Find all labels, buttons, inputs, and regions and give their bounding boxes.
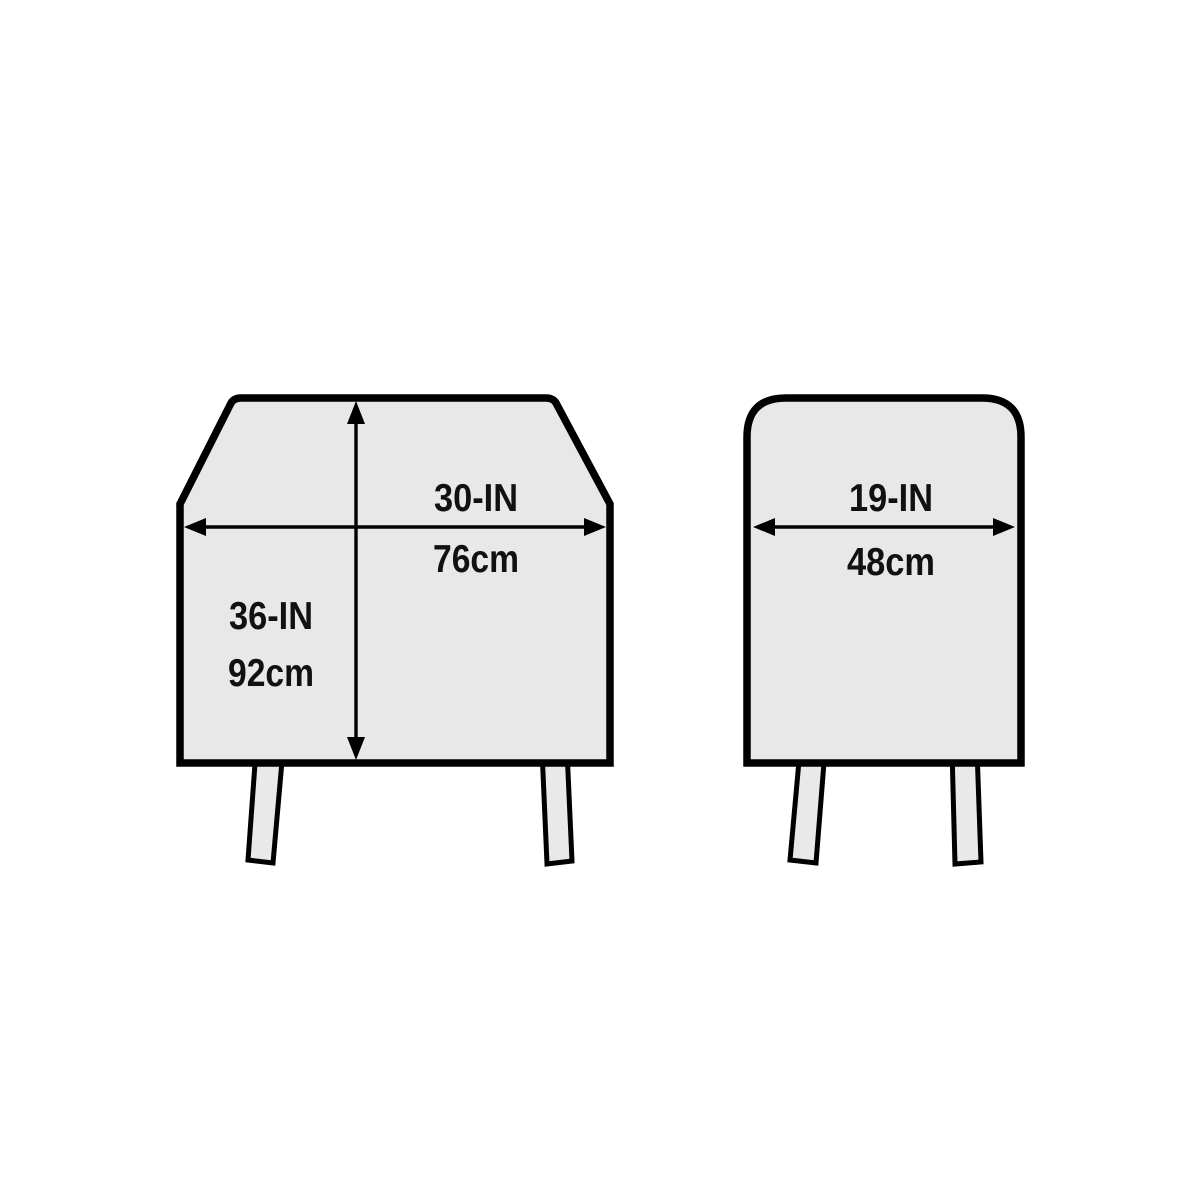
front-width-cm-label: 76cm xyxy=(433,538,519,581)
front-width-inches-label: 30-IN xyxy=(434,477,518,520)
front-view-group: 30-IN 76cm 36-IN 92cm xyxy=(180,398,610,864)
side-view-group: 19-IN 48cm xyxy=(747,398,1021,864)
side-depth-cm-label: 48cm xyxy=(847,541,935,584)
front-view-cover-shape xyxy=(180,398,610,763)
front-height-cm-label: 92cm xyxy=(228,652,314,695)
front-view-left-leg xyxy=(248,750,283,863)
product-dimensions-diagram: 30-IN 76cm 36-IN 92cm 19-IN 48cm xyxy=(0,0,1200,1200)
side-view-left-leg xyxy=(790,750,825,863)
front-height-inches-label: 36-IN xyxy=(229,595,313,638)
dimensions-canvas: 30-IN 76cm 36-IN 92cm 19-IN 48cm xyxy=(0,0,1200,1200)
front-view-right-leg xyxy=(542,750,572,864)
side-depth-inches-label: 19-IN xyxy=(849,477,933,520)
side-view-right-leg xyxy=(952,750,981,864)
